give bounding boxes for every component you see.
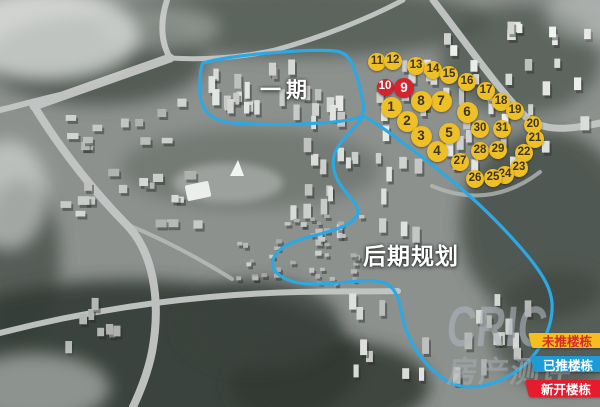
phase-outlines: [0, 0, 600, 407]
building-marker-31: 31: [493, 120, 511, 138]
legend-label-launched: 已推楼栋: [532, 356, 600, 372]
building-marker-4: 4: [427, 141, 448, 162]
legend-item-launched: 已推楼栋: [532, 356, 600, 372]
building-marker-10: 10: [377, 79, 394, 96]
building-marker-29: 29: [489, 141, 507, 159]
building-marker-26: 26: [466, 170, 484, 188]
legend-item-new-open: 新开楼栋: [527, 380, 600, 397]
legend-label-new-open: 新开楼栋: [527, 380, 600, 397]
legend-item-unlaunched: 未推楼栋: [530, 333, 600, 348]
building-marker-27: 27: [451, 153, 469, 171]
building-marker-30: 30: [471, 120, 489, 138]
building-marker-5: 5: [439, 123, 460, 144]
building-marker-19: 19: [506, 102, 524, 120]
phase1-label: 一期: [260, 74, 312, 104]
building-marker-3: 3: [411, 126, 432, 147]
building-marker-8: 8: [411, 91, 432, 112]
building-marker-13: 13: [407, 57, 425, 75]
building-marker-7: 7: [431, 91, 452, 112]
building-marker-6: 6: [457, 102, 478, 123]
building-marker-28: 28: [471, 142, 489, 160]
building-marker-15: 15: [440, 66, 458, 84]
future-phase-label: 后期规划: [363, 237, 459, 271]
building-marker-16: 16: [458, 73, 476, 91]
building-marker-9: 9: [394, 78, 414, 98]
building-marker-12: 12: [384, 52, 402, 70]
legend-label-unlaunched: 未推楼栋: [530, 333, 600, 348]
masterplan-image: 一期 后期规划 CRIC 房产测评 1112131415161718192021…: [0, 0, 600, 407]
building-marker-25: 25: [484, 169, 502, 187]
